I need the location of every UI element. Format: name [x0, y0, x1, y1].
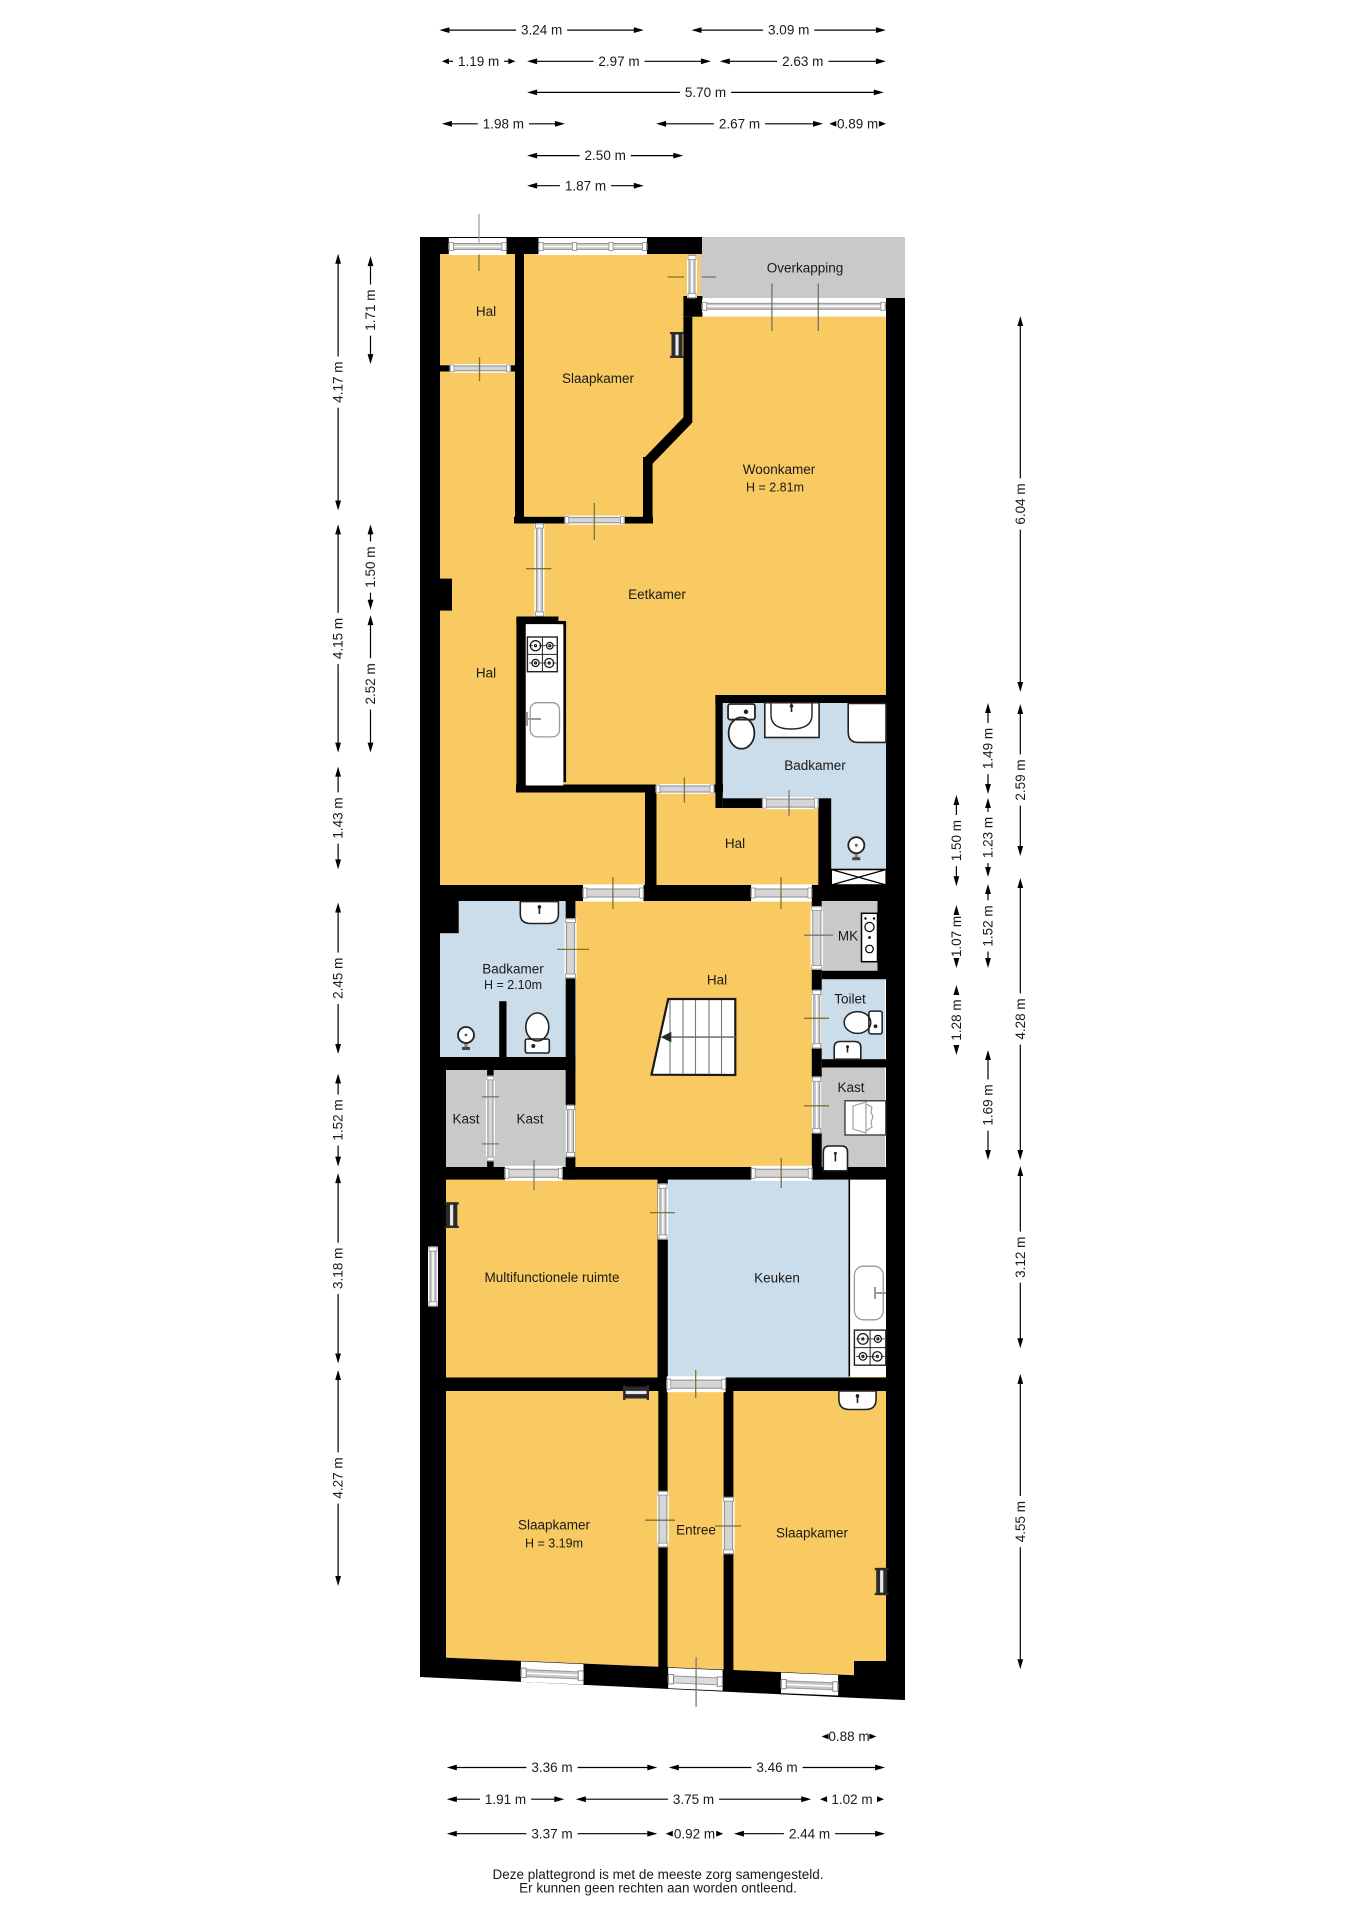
svg-text:Slaapkamer: Slaapkamer: [518, 1518, 591, 1533]
svg-text:2.50 m: 2.50 m: [585, 148, 626, 163]
svg-text:1.98 m: 1.98 m: [483, 116, 524, 131]
svg-text:4.28 m: 4.28 m: [1013, 998, 1028, 1039]
svg-text:H = 3.19m: H = 3.19m: [525, 1537, 583, 1551]
svg-text:Keuken: Keuken: [754, 1271, 800, 1286]
svg-text:0.88 m: 0.88 m: [828, 1729, 869, 1744]
svg-text:Woonkamer: Woonkamer: [743, 462, 816, 477]
svg-text:Slaapkamer: Slaapkamer: [562, 371, 635, 386]
svg-text:3.46 m: 3.46 m: [756, 1760, 797, 1775]
svg-text:Hal: Hal: [725, 836, 745, 851]
svg-text:2.67 m: 2.67 m: [719, 116, 760, 131]
svg-text:2.45 m: 2.45 m: [331, 958, 346, 999]
svg-text:Er kunnen geen rechten aan wor: Er kunnen geen rechten aan worden ontlee…: [519, 1881, 797, 1896]
svg-text:1.28 m: 1.28 m: [949, 999, 964, 1040]
svg-text:1.91 m: 1.91 m: [485, 1792, 526, 1807]
svg-text:0.92 m: 0.92 m: [674, 1826, 715, 1841]
svg-text:3.12 m: 3.12 m: [1013, 1237, 1028, 1278]
svg-text:2.59 m: 2.59 m: [1013, 759, 1028, 800]
svg-text:1.87 m: 1.87 m: [565, 178, 606, 193]
svg-text:1.49 m: 1.49 m: [981, 728, 996, 769]
svg-text:1.52 m: 1.52 m: [981, 905, 996, 946]
svg-text:H = 2.10m: H = 2.10m: [484, 978, 542, 992]
svg-text:3.09 m: 3.09 m: [768, 23, 809, 38]
svg-text:Kast: Kast: [837, 1080, 864, 1095]
svg-text:4.15 m: 4.15 m: [331, 618, 346, 659]
svg-text:0.89 m: 0.89 m: [837, 116, 878, 131]
svg-text:Badkamer: Badkamer: [784, 758, 846, 773]
svg-text:2.97 m: 2.97 m: [598, 54, 639, 69]
svg-text:4.55 m: 4.55 m: [1013, 1501, 1028, 1542]
svg-text:Overkapping: Overkapping: [767, 261, 844, 276]
svg-text:Toilet: Toilet: [834, 992, 866, 1007]
svg-text:1.50 m: 1.50 m: [949, 820, 964, 861]
svg-text:Kast: Kast: [516, 1112, 543, 1127]
svg-text:1.19 m: 1.19 m: [458, 54, 499, 69]
svg-text:5.70 m: 5.70 m: [685, 85, 726, 100]
svg-text:Hal: Hal: [476, 666, 496, 681]
svg-text:MK: MK: [838, 929, 858, 944]
svg-text:1.23 m: 1.23 m: [981, 817, 996, 858]
svg-text:2.44 m: 2.44 m: [789, 1826, 830, 1841]
svg-text:1.52 m: 1.52 m: [331, 1099, 346, 1140]
svg-text:3.18 m: 3.18 m: [331, 1248, 346, 1289]
svg-text:3.37 m: 3.37 m: [531, 1826, 572, 1841]
svg-text:H = 2.81m: H = 2.81m: [746, 481, 804, 495]
svg-text:Entree: Entree: [676, 1523, 716, 1538]
svg-text:Hal: Hal: [707, 973, 727, 988]
svg-text:4.27 m: 4.27 m: [331, 1457, 346, 1498]
svg-text:2.63 m: 2.63 m: [782, 54, 823, 69]
svg-text:Slaapkamer: Slaapkamer: [776, 1526, 849, 1541]
svg-text:1.50 m: 1.50 m: [363, 546, 378, 587]
svg-text:6.04 m: 6.04 m: [1013, 483, 1028, 524]
svg-text:1.43 m: 1.43 m: [331, 797, 346, 838]
svg-text:2.52 m: 2.52 m: [363, 663, 378, 704]
svg-text:1.69 m: 1.69 m: [981, 1084, 996, 1125]
svg-text:Hal: Hal: [476, 304, 496, 319]
svg-text:1.07 m: 1.07 m: [949, 916, 964, 957]
svg-text:4.17 m: 4.17 m: [331, 361, 346, 402]
svg-text:1.02 m: 1.02 m: [831, 1792, 872, 1807]
svg-text:Kast: Kast: [452, 1112, 479, 1127]
svg-text:3.36 m: 3.36 m: [531, 1760, 572, 1775]
svg-text:Badkamer: Badkamer: [482, 962, 544, 977]
svg-text:Eetkamer: Eetkamer: [628, 587, 686, 602]
svg-text:1.71 m: 1.71 m: [363, 289, 378, 330]
svg-text:Multifunctionele ruimte: Multifunctionele ruimte: [484, 1270, 619, 1285]
svg-text:3.75 m: 3.75 m: [673, 1792, 714, 1807]
svg-text:3.24 m: 3.24 m: [521, 23, 562, 38]
